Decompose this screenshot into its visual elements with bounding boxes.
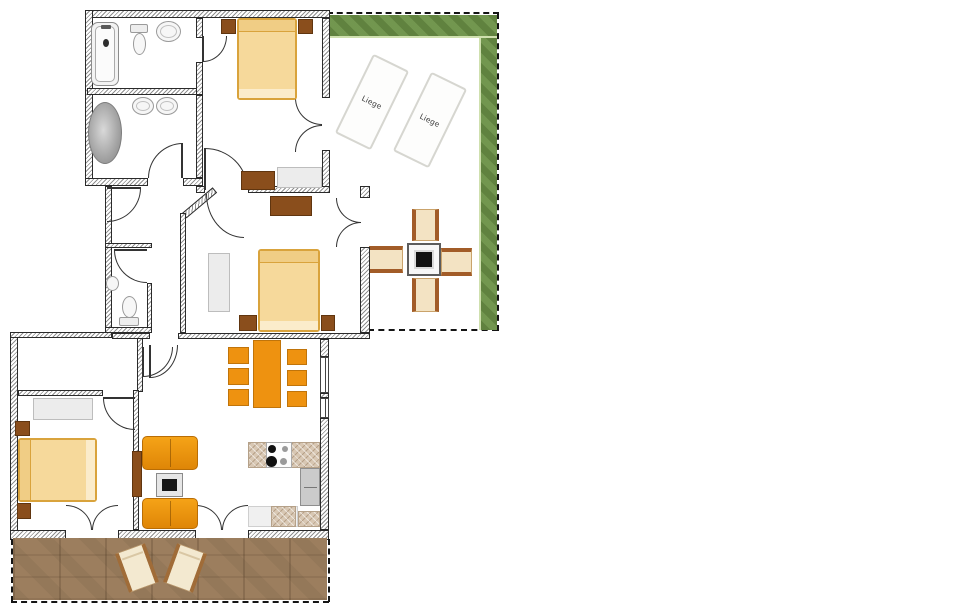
- coffee-table-icon: [156, 473, 183, 497]
- wall-segment: [180, 213, 186, 333]
- sink-basin: [136, 101, 150, 111]
- door-swing-icon: [203, 36, 227, 62]
- sink-icon: [156, 21, 181, 42]
- door-swing-icon: [114, 250, 147, 283]
- double-bed-icon: [237, 18, 297, 100]
- wall-segment: [85, 178, 148, 186]
- bed-blanket-fold: [239, 89, 295, 98]
- wall-segment: [147, 283, 152, 328]
- door-swing-icon: [150, 345, 178, 378]
- window-icon: [320, 357, 329, 393]
- patio-table-top: [414, 250, 434, 269]
- wall-segment: [178, 333, 370, 339]
- bed-pillow: [239, 20, 295, 32]
- deck-boundary-right: [328, 539, 330, 602]
- window-mullion: [325, 358, 326, 392]
- toilet-icon: [130, 24, 148, 33]
- wall-segment: [105, 243, 152, 248]
- patio-chair-icon: [412, 278, 439, 312]
- desk-icon: [270, 196, 312, 216]
- lounger-headrest: [122, 551, 143, 560]
- stove-burner: [266, 456, 277, 467]
- floor-plan-canvas: Liege Liege: [0, 0, 960, 609]
- french-door-swing-icon: [295, 125, 322, 152]
- toilet-bowl: [133, 33, 146, 55]
- bathtub-basin: [95, 26, 115, 82]
- dining-chair-icon: [228, 368, 249, 385]
- wall-segment: [360, 186, 370, 198]
- dining-chair-icon: [228, 389, 249, 406]
- lounger-label: Liege: [418, 111, 441, 128]
- wall-segment: [85, 10, 330, 18]
- kitchen-counter-icon: [271, 506, 296, 527]
- sink-basin: [160, 25, 177, 38]
- dining-chair-icon: [287, 370, 307, 386]
- bed-pillow: [260, 251, 318, 263]
- patio-chair-icon: [412, 209, 439, 241]
- wall-segment: [322, 18, 330, 98]
- nightstand-icon: [221, 19, 236, 34]
- door-leaf: [204, 148, 206, 190]
- sink-basin: [160, 101, 174, 111]
- stove-burner: [280, 458, 287, 465]
- window-mullion: [325, 399, 326, 417]
- lounger-label: Liege: [360, 93, 383, 110]
- window-icon: [320, 398, 329, 418]
- wall-segment: [112, 333, 150, 339]
- dresser-icon: [277, 167, 322, 188]
- kitchen-counter-icon: [298, 511, 320, 527]
- tall-cabinet-icon: [300, 468, 320, 506]
- bed-pillow: [20, 440, 31, 500]
- coffee-table-top: [162, 479, 177, 491]
- bed-blanket-fold: [260, 321, 318, 330]
- grass-strip-right: [479, 38, 497, 330]
- double-bed-icon: [18, 438, 97, 502]
- dining-chair-icon: [228, 347, 249, 364]
- dining-chair-icon: [287, 391, 307, 407]
- nightstand-icon: [17, 503, 31, 519]
- deck-boundary-left: [11, 539, 13, 602]
- sink-icon: [106, 276, 119, 291]
- sink-icon: [156, 97, 178, 115]
- door-leaf: [103, 397, 135, 399]
- sofa-icon: [142, 436, 198, 470]
- bed-blanket-fold: [86, 440, 95, 500]
- cabinet-icon: [241, 171, 275, 190]
- stove-burner: [282, 446, 288, 452]
- nightstand-icon: [15, 421, 30, 436]
- terrace-boundary-top: [327, 12, 499, 14]
- wall-segment: [183, 178, 203, 186]
- wardrobe-icon: [33, 398, 93, 420]
- french-door-swing-icon: [336, 222, 361, 247]
- french-door-swing-icon: [295, 98, 322, 125]
- sofa-seam: [170, 439, 171, 467]
- door-swing-icon: [148, 143, 183, 178]
- door-leaf: [114, 249, 147, 251]
- wall-segment: [322, 150, 330, 188]
- dining-chair-icon: [287, 349, 307, 365]
- wall-segment: [196, 95, 203, 178]
- sun-lounger-icon: Liege: [393, 72, 468, 169]
- door-leaf: [107, 187, 141, 189]
- nightstand-icon: [298, 19, 313, 34]
- door-swing-icon: [206, 194, 244, 238]
- door-leaf: [149, 345, 151, 378]
- french-door-swing-icon: [222, 505, 248, 530]
- grass-strip-top: [330, 15, 497, 38]
- dining-table-icon: [253, 340, 281, 408]
- french-door-swing-icon: [66, 505, 92, 530]
- nightstand-icon: [239, 315, 257, 331]
- nightstand-icon: [321, 315, 335, 331]
- sofa-seam: [170, 501, 171, 526]
- terrace-boundary-right: [497, 13, 499, 331]
- patio-table-icon: [407, 243, 441, 276]
- door-leaf: [202, 36, 204, 62]
- tv-board-icon: [132, 451, 142, 497]
- wall-segment: [196, 62, 203, 95]
- sun-lounger-icon: Liege: [335, 54, 410, 151]
- door-swing-icon: [107, 188, 141, 222]
- deck-boundary-bottom: [11, 601, 329, 603]
- door-swing-icon: [103, 398, 135, 430]
- sofa-icon: [142, 498, 198, 529]
- toilet-icon: [119, 317, 139, 326]
- sink-icon: [132, 97, 154, 115]
- stove-burner: [268, 445, 276, 453]
- cabinet-handle: [304, 487, 317, 488]
- wardrobe-icon: [208, 253, 230, 312]
- toilet-bowl: [122, 296, 137, 318]
- wall-segment: [196, 18, 203, 38]
- wall-segment: [10, 332, 112, 338]
- french-door-swing-icon: [196, 505, 222, 530]
- wall-segment: [18, 390, 103, 396]
- door-leaf: [181, 143, 183, 178]
- wall-segment: [360, 247, 370, 333]
- wall-segment: [320, 418, 329, 530]
- french-door-swing-icon: [92, 505, 118, 530]
- oval-bathtub-icon: [88, 102, 122, 164]
- bathtub-icon: [91, 22, 119, 86]
- lounger-headrest: [179, 551, 200, 560]
- patio-chair-icon: [369, 246, 403, 273]
- double-bed-icon: [258, 249, 320, 332]
- wall-segment: [87, 88, 199, 95]
- bathtub-drain: [103, 39, 109, 47]
- french-door-swing-icon: [336, 198, 361, 223]
- door-leaf: [142, 347, 144, 377]
- bathtub-faucet: [101, 25, 111, 29]
- wall-segment: [320, 339, 329, 357]
- patio-chair-icon: [441, 248, 472, 276]
